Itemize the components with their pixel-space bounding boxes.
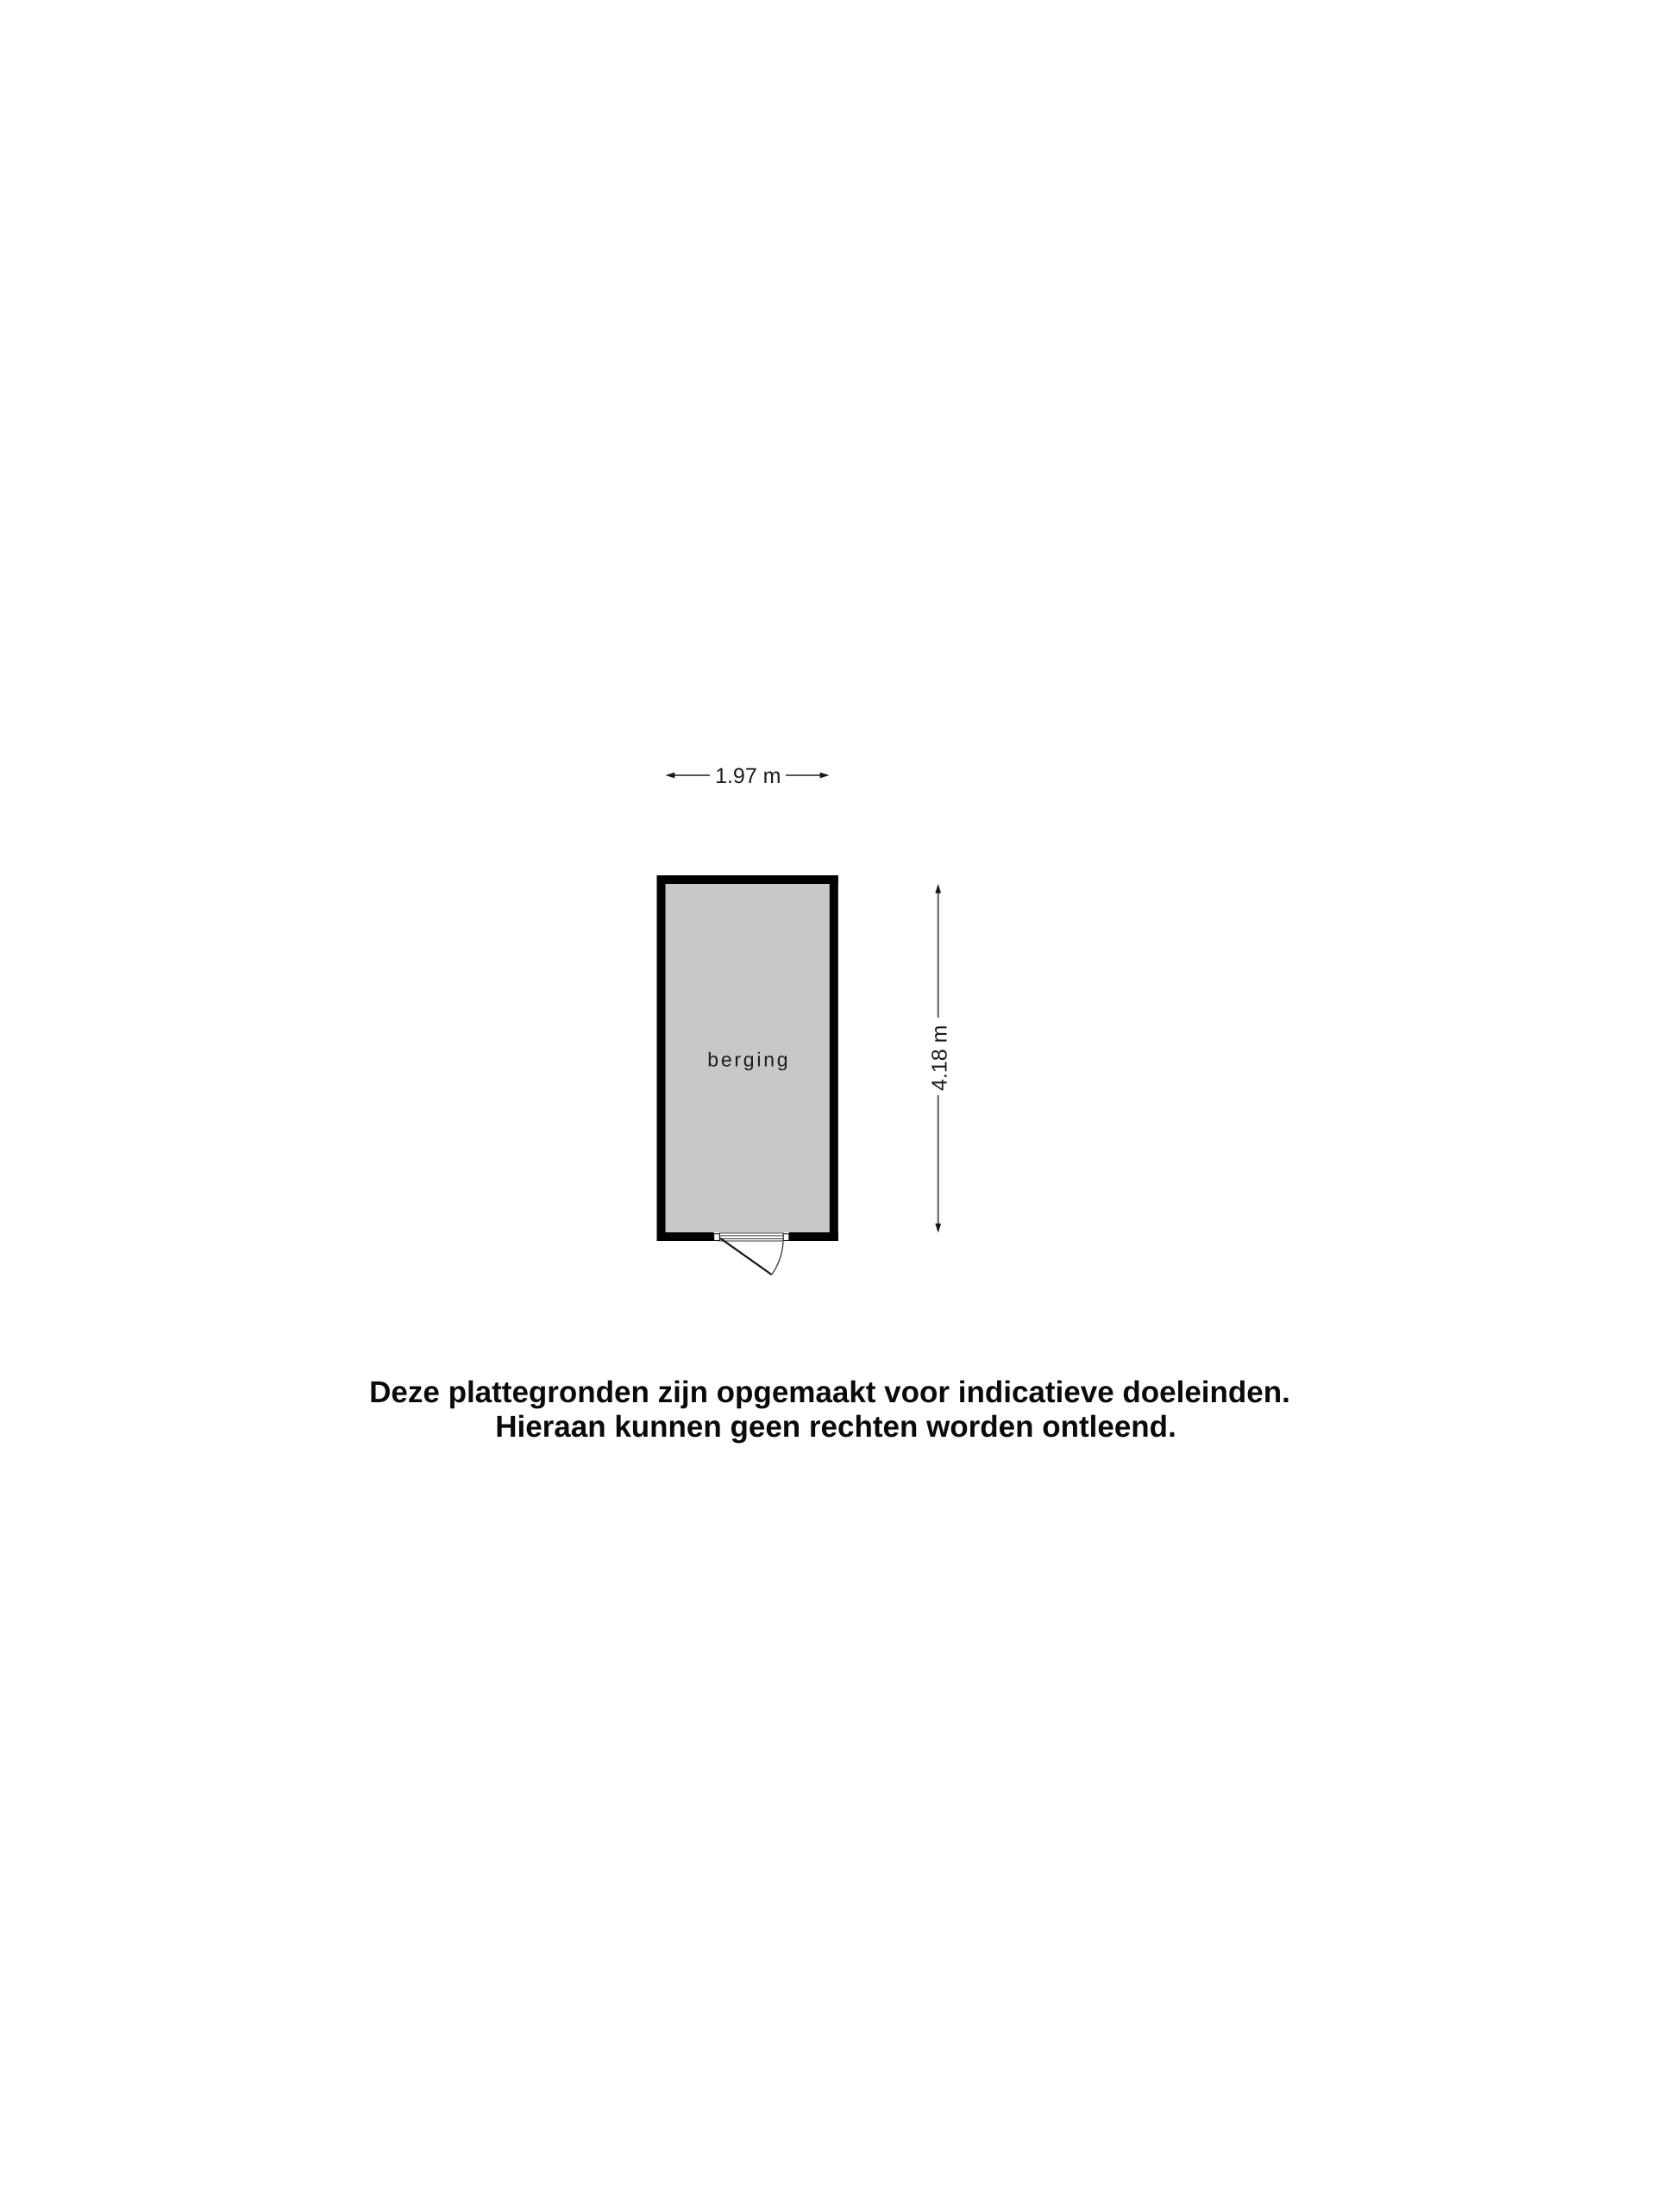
- svg-text:berging: berging: [707, 1049, 790, 1071]
- svg-text:Hieraan kunnen geen rechten wo: Hieraan kunnen geen rechten worden ontle…: [495, 1410, 1176, 1444]
- svg-text:1.97 m: 1.97 m: [715, 764, 781, 788]
- svg-text:Deze plattegronden zijn opgema: Deze plattegronden zijn opgemaakt voor i…: [369, 1375, 1290, 1409]
- svg-text:4.18 m: 4.18 m: [928, 1025, 952, 1091]
